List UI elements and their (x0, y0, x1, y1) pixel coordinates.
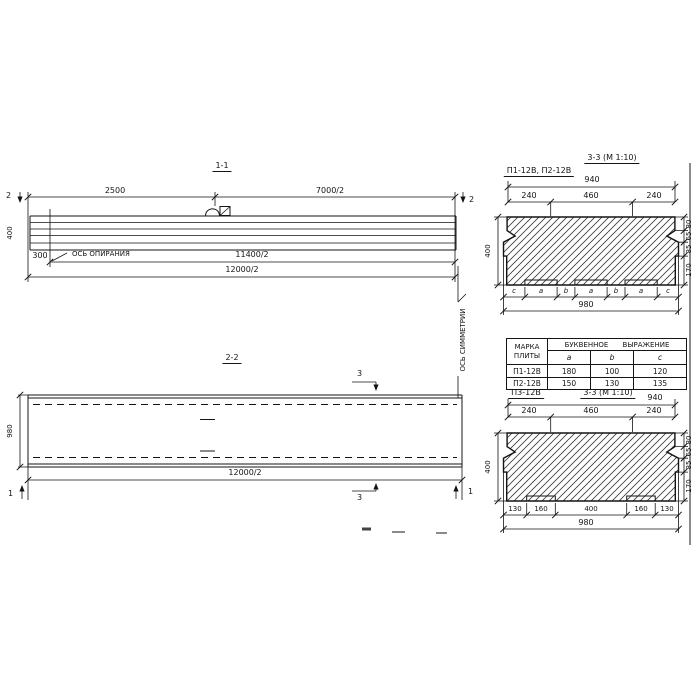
engineering-drawing-canvas: 1-1 2500 7000/2 2 2 400 300 ОСЬ ОПИРАНИЯ… (0, 0, 700, 700)
height-label-980: 980 (6, 424, 14, 437)
table-header-mark: МАРКА ПЛИТЫ (507, 339, 548, 365)
table-cell-p1-c: 120 (634, 365, 686, 378)
letter-dim-c2: c (666, 287, 670, 295)
section-marker-1-right: 1 (468, 487, 473, 496)
bottom-dim-400: 400 (584, 505, 597, 513)
right-dim-170-top: 170 (685, 263, 693, 276)
section-marker-2-left: 2 (6, 191, 11, 200)
right-dim-85-top: 85 (685, 245, 693, 254)
right-dim-170-bot: 170 (685, 479, 693, 492)
dim-label-12000-2-s11: 12000/2 (225, 265, 258, 274)
letter-dim-b2: b (614, 287, 618, 295)
dim-label-300: 300 (32, 251, 47, 260)
right-dim-65-bot: 65 (685, 448, 693, 457)
table-cell-p1-a: 180 (548, 365, 591, 378)
dim-label-240-r-top: 240 (646, 191, 661, 200)
dim-label-240-l-bot: 240 (521, 406, 536, 415)
scan-smudges (362, 529, 447, 533)
letter-values-table: МАРКА ПЛИТЫ БУКВЕННОЕ ВЫРАЖЕНИЕ a b c П1… (506, 338, 687, 390)
section-marker-2-right: 2 (469, 195, 474, 204)
bottom-dim-160-r: 160 (634, 505, 647, 513)
dim-label-460-top: 460 (583, 191, 598, 200)
height-label-400-s11: 400 (6, 226, 14, 239)
bottom-dim-130-l: 130 (508, 505, 521, 513)
support-axis-label: ОСЬ ОПИРАНИЯ (72, 250, 130, 258)
dim-label-240-r-bot: 240 (646, 406, 661, 415)
cross-section-body-p1p2 (504, 217, 679, 285)
dim-label-11400-2: 11400/2 (235, 250, 268, 259)
bottom-dim-130-r: 130 (660, 505, 673, 513)
dim-label-980-bot: 980 (578, 518, 593, 527)
center-mark-dashes (200, 420, 215, 452)
letter-dim-a2: a (589, 287, 593, 295)
dim-label-940-bot: 940 (647, 393, 662, 402)
section-marker-1-left: 1 (8, 489, 13, 498)
section-2-2-title: 2-2 (222, 353, 241, 364)
dim-label-240-l-top: 240 (521, 191, 536, 200)
bottom-dim-160-l: 160 (534, 505, 547, 513)
dim-label-980-top: 980 (578, 300, 593, 309)
plate-label-p3: П3-12В (508, 388, 544, 399)
section-3-3-bottom-title: 3-3 (М 1:10) (580, 388, 635, 399)
letter-dim-c1: c (512, 287, 516, 295)
section-marker-3-bottom: 3 (357, 493, 362, 502)
right-dim-80-top: 80 (685, 220, 693, 229)
table-cell-mark-p1: П1-12В (507, 365, 548, 378)
dim-label-7000-2: 7000/2 (316, 186, 344, 195)
letter-dim-a1: a (539, 287, 543, 295)
letter-dim-b1: b (564, 287, 568, 295)
table-header-expression: БУКВЕННОЕ ВЫРАЖЕНИЕ (548, 339, 686, 351)
dim-label-940-top: 940 (584, 175, 599, 184)
table-subheader-a: a (548, 351, 591, 365)
right-dim-85-bot: 85 (685, 461, 693, 470)
table-subheader-b: b (591, 351, 634, 365)
plates-label-p1-p2: П1-12В, П2-12В (504, 166, 574, 177)
section-marker-3-top: 3 (357, 369, 362, 378)
section-2-2-linework (17, 382, 465, 500)
symmetry-axis-label: ОСЬ СИММЕТРИИ (459, 308, 467, 371)
letter-dim-a3: a (639, 287, 643, 295)
table-subheader-c: c (634, 351, 686, 365)
dim-label-12000-2-s22: 12000/2 (228, 468, 261, 477)
right-dim-65-top: 65 (685, 232, 693, 241)
height-label-400-top: 400 (484, 244, 492, 257)
section-1-1-title: 1-1 (212, 161, 231, 172)
dim-label-460-bot: 460 (583, 406, 598, 415)
dim-label-2500: 2500 (105, 186, 125, 195)
table-cell-p2-c: 135 (634, 378, 686, 389)
lifting-loop-icon (206, 207, 231, 217)
table-cell-p1-b: 100 (591, 365, 634, 378)
right-dim-80-bot: 80 (685, 436, 693, 445)
section-3-3-top-title: 3-3 (М 1:10) (584, 153, 639, 164)
height-label-400-bot: 400 (484, 460, 492, 473)
cross-section-body-p3 (504, 433, 679, 501)
